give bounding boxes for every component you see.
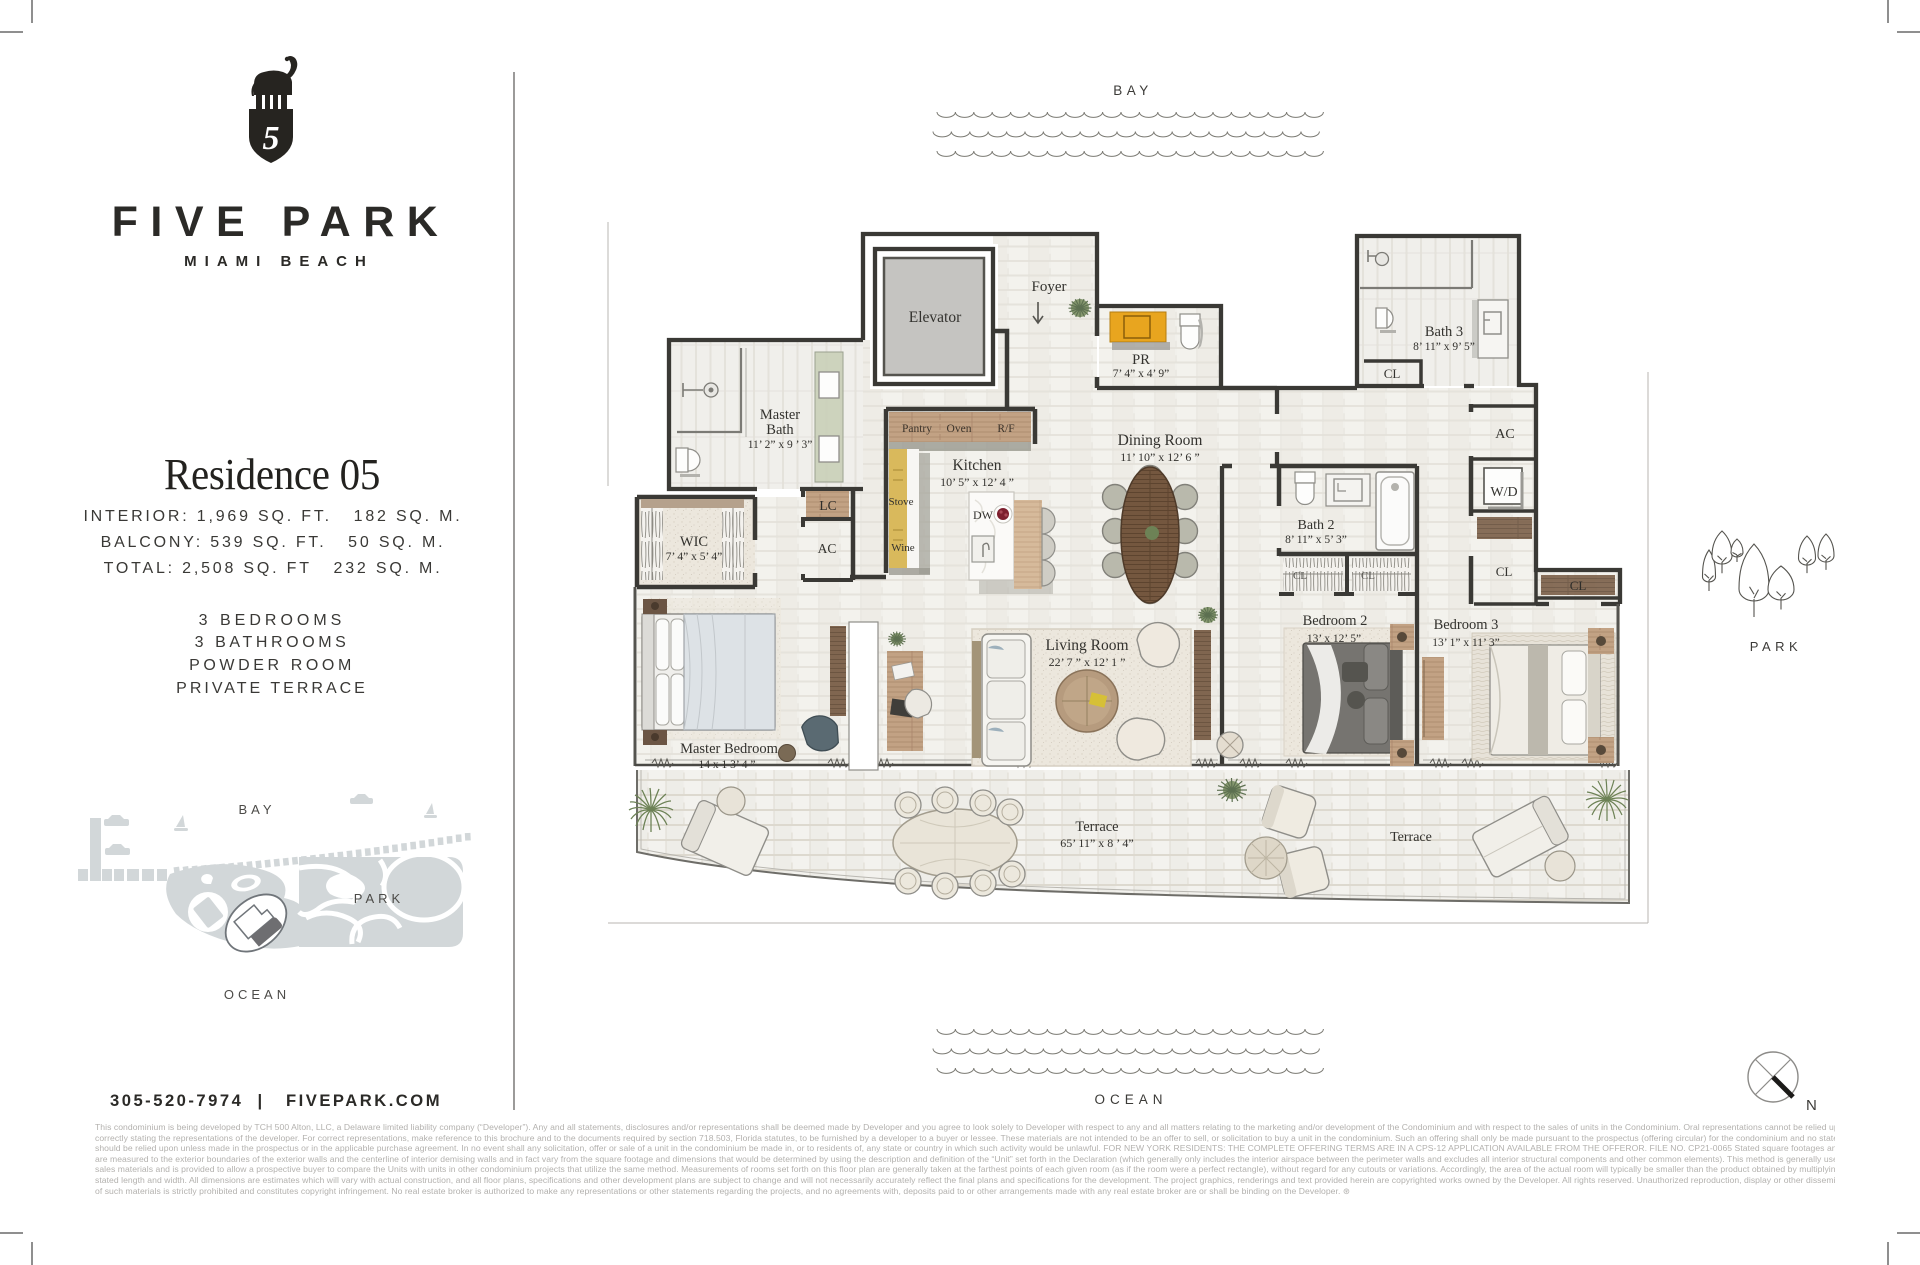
svg-text:Dining Room: Dining Room <box>1118 432 1203 449</box>
svg-text:LC: LC <box>819 498 836 513</box>
svg-text:22’ 7 ” x 12’ 1 ”: 22’ 7 ” x 12’ 1 ” <box>1049 655 1126 669</box>
svg-text:BALCONY: 539 SQ. FT. 50 SQ.: BALCONY: 539 SQ. FT. 50 SQ. M. <box>101 534 446 551</box>
svg-text:Living Room: Living Room <box>1045 637 1128 654</box>
svg-text:OCEAN: OCEAN <box>1094 1092 1167 1107</box>
svg-text:Bath 3: Bath 3 <box>1425 324 1463 340</box>
svg-text:WIC: WIC <box>680 534 708 550</box>
svg-text:CL: CL <box>1496 564 1513 579</box>
svg-text:7’ 4” x 4’ 9”: 7’ 4” x 4’ 9” <box>1113 368 1169 380</box>
svg-text:POWDER ROOM: POWDER ROOM <box>189 657 355 674</box>
svg-text:5: 5 <box>263 120 280 157</box>
svg-text:14 x 1 3’ 4 ”: 14 x 1 3’ 4 ” <box>699 759 756 771</box>
svg-text:Pantry: Pantry <box>902 423 932 435</box>
svg-text:305-520-7974 | FIVEPARK.COM: 305-520-7974 | FIVEPARK.COM <box>110 1091 442 1110</box>
svg-text:Terrace: Terrace <box>1075 819 1118 835</box>
svg-text:13’ x 12’ 5”: 13’ x 12’ 5” <box>1307 633 1361 645</box>
svg-text:CL: CL <box>1384 366 1401 381</box>
svg-text:N: N <box>1806 1097 1817 1114</box>
svg-text:INTERIOR: 1,969 SQ. FT. 182: INTERIOR: 1,969 SQ. FT. 182 SQ. M. <box>83 508 462 525</box>
svg-text:MIAMI BEACH: MIAMI BEACH <box>184 253 374 270</box>
svg-text:13’ 1” x 11’ 3”: 13’ 1” x 11’ 3” <box>1432 637 1499 649</box>
svg-text:Master: Master <box>760 407 800 423</box>
svg-text:Bath: Bath <box>766 422 794 438</box>
svg-text:Elevator: Elevator <box>909 309 962 326</box>
svg-text:AC: AC <box>1495 427 1514 442</box>
svg-text:CL: CL <box>1570 578 1587 593</box>
svg-text:Oven: Oven <box>947 423 972 435</box>
svg-text:OCEAN: OCEAN <box>224 987 290 1002</box>
svg-text:Master Bedroom: Master Bedroom <box>680 741 779 757</box>
svg-text:Bedroom 2: Bedroom 2 <box>1303 613 1368 629</box>
svg-text:PRIVATE TERRACE: PRIVATE TERRACE <box>176 680 368 697</box>
svg-text:Stove: Stove <box>888 496 913 508</box>
svg-text:3 BEDROOMS: 3 BEDROOMS <box>199 612 346 629</box>
svg-text:CL: CL <box>1361 570 1375 582</box>
svg-text:CL: CL <box>1293 570 1307 582</box>
svg-text:10’ 5” x 12’ 4 ”: 10’ 5” x 12’ 4 ” <box>940 475 1014 489</box>
svg-text:R/F: R/F <box>997 423 1014 435</box>
svg-text:11’ 2” x 9 ’ 3”: 11’ 2” x 9 ’ 3” <box>748 439 813 451</box>
svg-text:BAY: BAY <box>238 802 275 817</box>
svg-text:PR: PR <box>1132 352 1150 368</box>
svg-text:Wine: Wine <box>891 542 914 554</box>
svg-text:W/D: W/D <box>1490 485 1517 500</box>
svg-text:7’ 4” x 5’ 4”: 7’ 4” x 5’ 4” <box>666 551 722 563</box>
svg-text:Foyer: Foyer <box>1032 279 1067 295</box>
svg-text:FIVE PARK: FIVE PARK <box>112 198 451 246</box>
svg-text:Bath 2: Bath 2 <box>1298 518 1335 533</box>
svg-text:Terrace: Terrace <box>1390 830 1432 845</box>
svg-text:PARK: PARK <box>1750 639 1802 654</box>
svg-text:BAY: BAY <box>1113 83 1153 98</box>
svg-text:PARK: PARK <box>354 891 404 906</box>
svg-text:3 BATHROOMS: 3 BATHROOMS <box>195 634 350 651</box>
svg-text:8’ 11” x 5’ 3”: 8’ 11” x 5’ 3” <box>1285 534 1347 546</box>
svg-text:AC: AC <box>818 541 837 556</box>
svg-text:65’ 11” x 8 ’ 4”: 65’ 11” x 8 ’ 4” <box>1060 836 1133 850</box>
svg-text:Residence 05: Residence 05 <box>164 450 380 499</box>
svg-text:DW: DW <box>973 508 994 522</box>
svg-text:Kitchen: Kitchen <box>952 457 1001 474</box>
svg-text:8’ 11” x 9’ 5”: 8’ 11” x 9’ 5” <box>1413 341 1475 353</box>
svg-text:TOTAL: 2,508 SQ. FT 232 SQ.: TOTAL: 2,508 SQ. FT 232 SQ. M. <box>104 560 443 577</box>
svg-text:Bedroom 3: Bedroom 3 <box>1434 617 1499 633</box>
svg-text:11’ 10” x 12’ 6 ”: 11’ 10” x 12’ 6 ” <box>1120 450 1199 464</box>
